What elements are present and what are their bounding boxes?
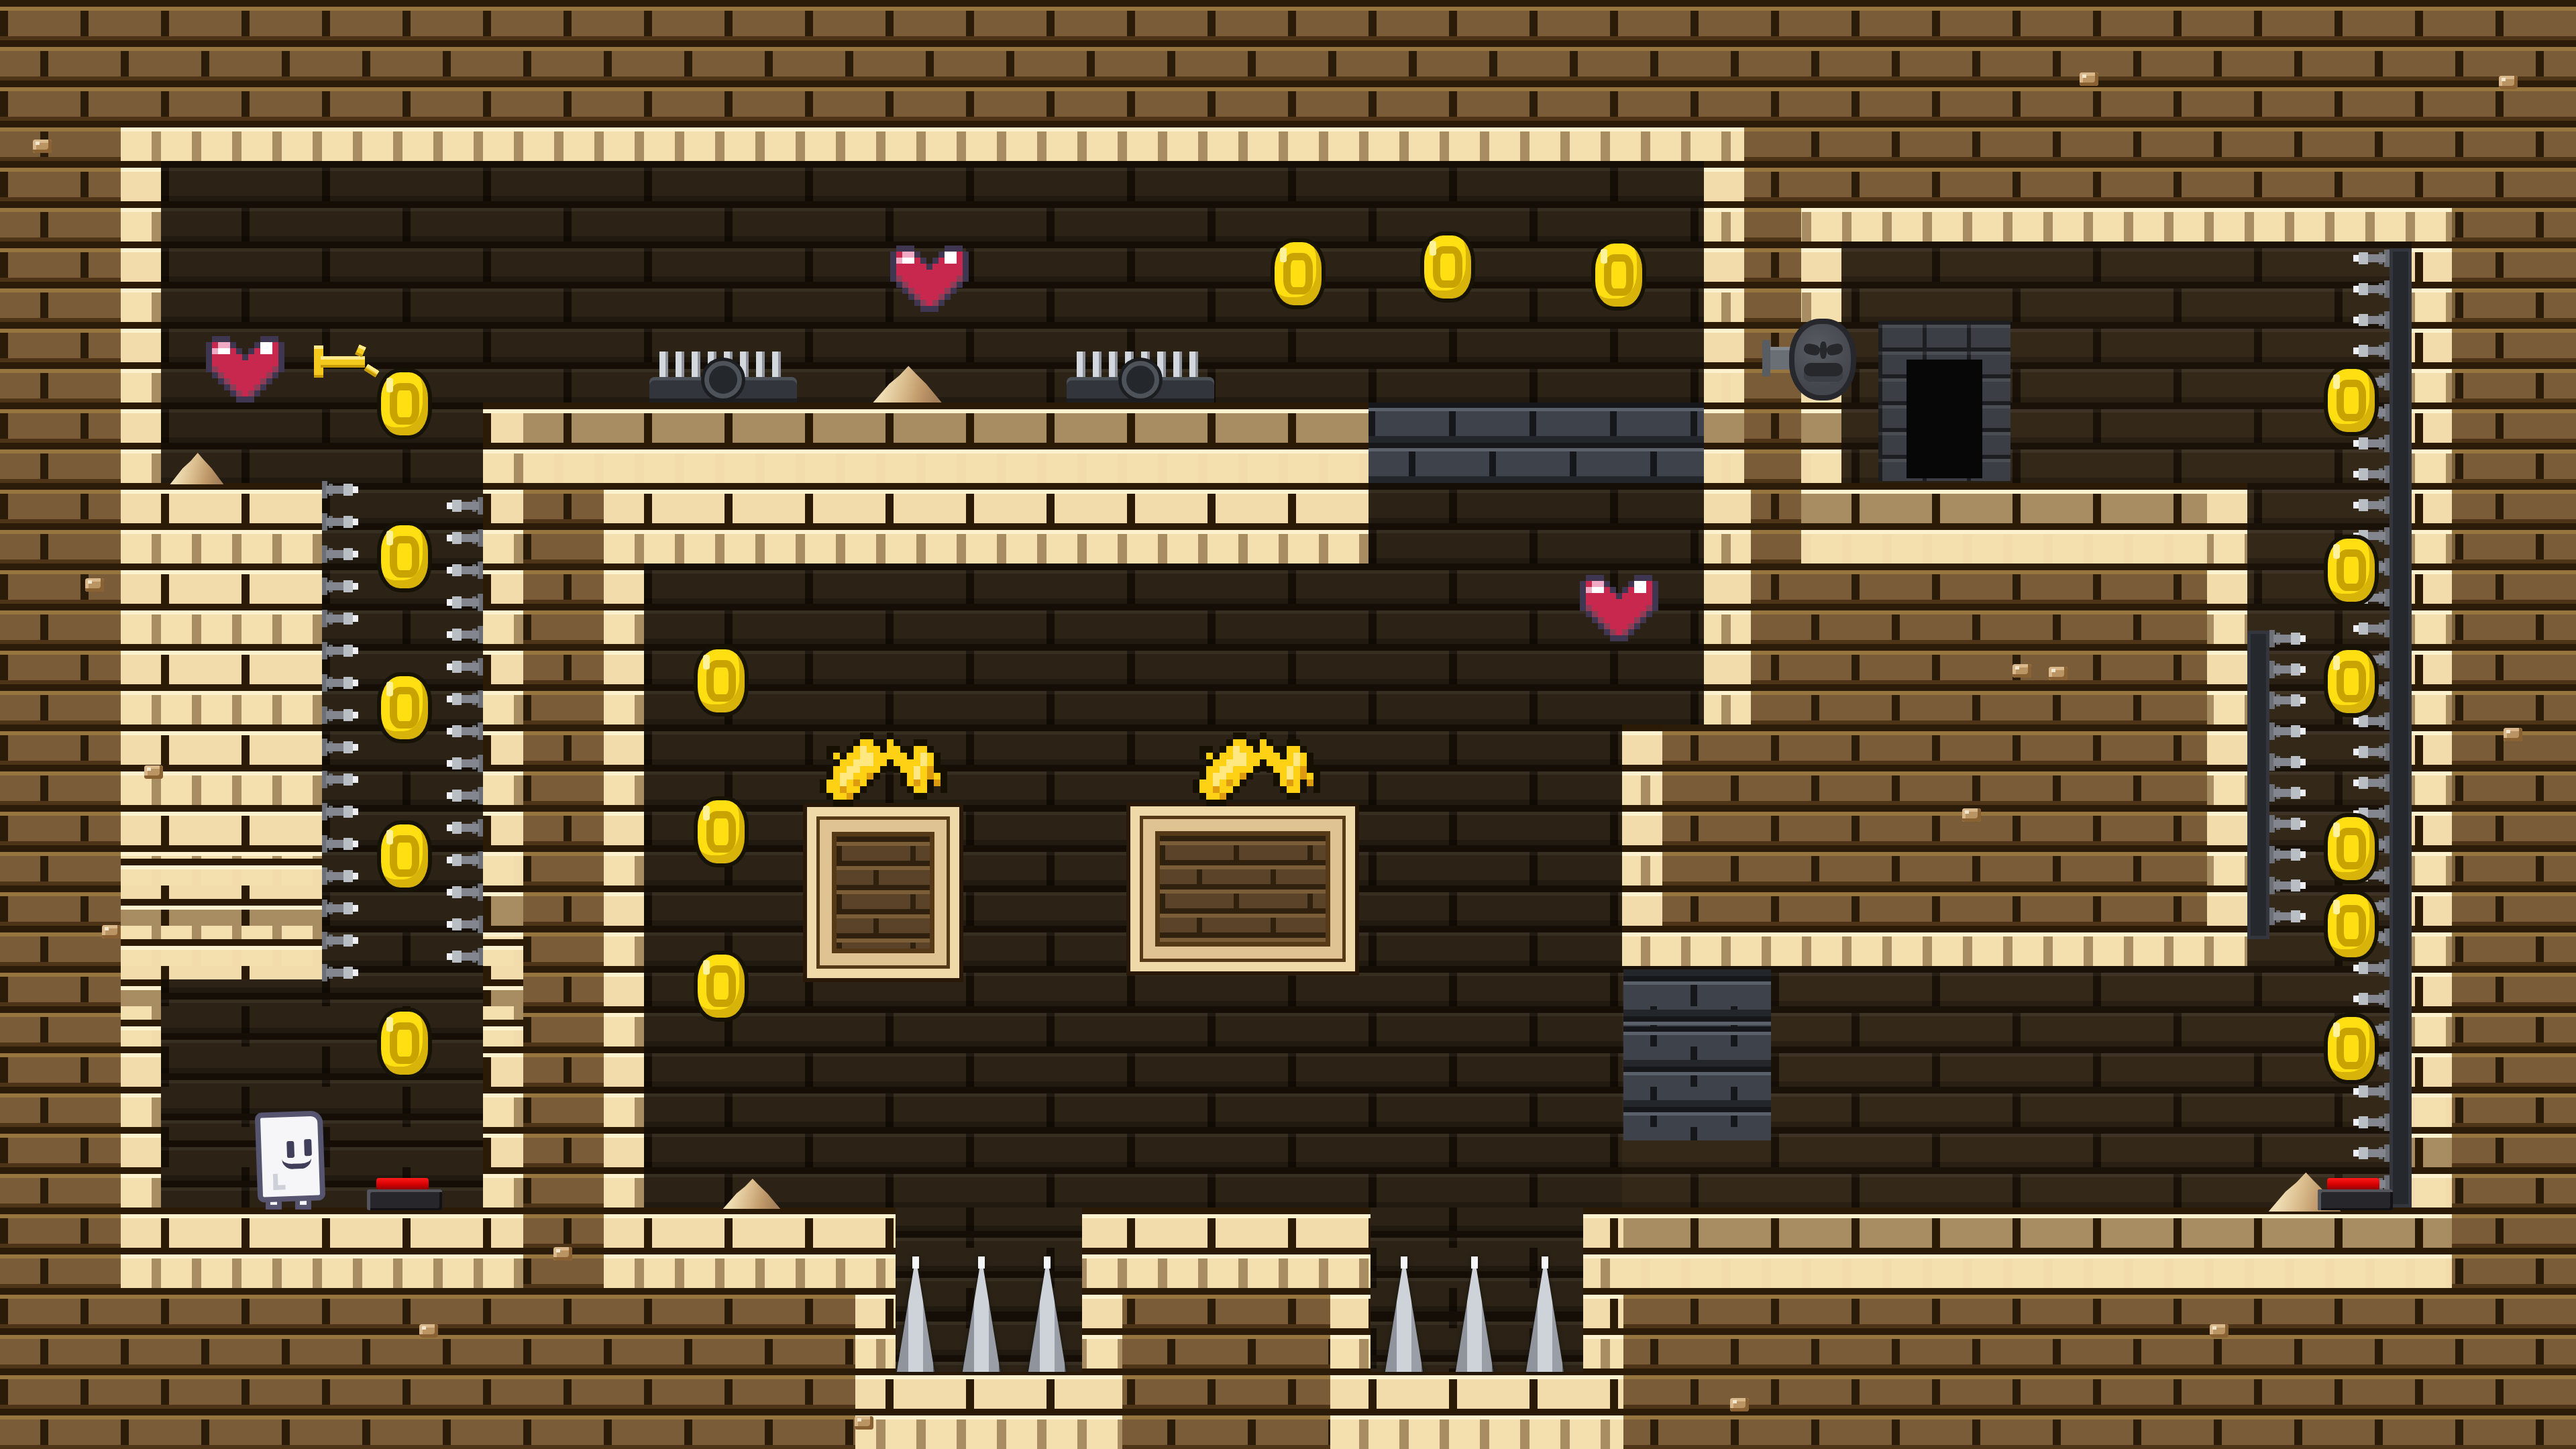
dart-shaft [326,904,345,912]
coin-highlight [386,1017,393,1032]
game-canvas[interactable] [0,0,2576,1449]
dart-shaft [2273,696,2292,704]
dart-head [343,677,353,689]
dart-shaft [326,550,345,558]
dart-shaft [460,856,479,864]
dart-tip [353,680,358,686]
dart-tip [2353,625,2359,632]
pebble-highlight [147,767,151,771]
dart-spike [322,769,361,790]
dart-shaft [2273,851,2292,859]
dart-shaft [460,888,479,896]
dart-spike [2351,1112,2390,1132]
dart-tip [2353,996,2359,1002]
dart-head [452,725,462,737]
dart-tip [353,519,358,525]
dart-spike [2269,721,2308,741]
dart-head [343,580,353,592]
dart-tip [353,776,358,783]
dart-head [452,822,462,834]
dart-shaft [460,727,479,735]
dart-head [2359,715,2368,727]
dart-shaft [2273,789,2292,797]
dart-tip [353,615,358,622]
dart-tip [447,921,452,928]
coin-highlight [1430,241,1436,256]
coin [377,521,432,592]
dart-head [2291,633,2300,645]
dart-head [2359,777,2368,789]
coin [2324,365,2379,436]
dart-head [2359,499,2368,511]
dart-head [2291,879,2300,892]
dart-spike [322,963,361,983]
wall-border [2207,483,2247,966]
dart-tip [2300,759,2306,765]
spike-cone [1375,1256,1434,1372]
dart-head [343,934,353,947]
dart-shaft [326,486,345,494]
dart-head [452,951,462,963]
dart-head [343,612,353,625]
dart-head [343,902,353,914]
pebble-highlight [2015,666,2019,669]
coin-ring [2337,549,2366,591]
dart-head [2359,623,2368,635]
dart-spike [444,882,483,902]
player-character[interactable] [256,1112,324,1210]
dart-spike [444,753,483,773]
dart-spike [322,866,361,886]
door-opening [1907,360,1982,478]
coin-ring [2337,380,2366,421]
dart-tip [2300,697,2306,704]
dart-head [452,918,462,930]
dart-tip [353,808,358,815]
pebble-highlight [556,1249,560,1252]
dart-tip [2353,255,2359,262]
coin [2324,813,2379,884]
dart-head [452,564,462,576]
cannon-nose [1820,341,1827,359]
pebble-highlight [105,927,109,930]
key-tooth [364,364,380,378]
coin [694,951,749,1022]
dart-spike [2351,341,2390,361]
dart-shaft [2367,285,2385,293]
key-shaft [321,356,365,368]
dart-spike [322,705,361,725]
dart-shaft [460,695,479,703]
dart-tip [353,905,358,912]
coin-highlight [2333,1022,2340,1037]
heart-pickup [206,336,212,342]
coin [377,820,432,892]
cannon-mouth [1804,363,1843,382]
dart-tip [447,599,452,606]
pebble-highlight [1965,810,1969,814]
dart-head [452,790,462,802]
metal-block-cluster [1368,402,1704,483]
pebble-debris [2504,728,2522,741]
dart-shaft [326,872,345,880]
dart-head [2359,746,2368,758]
coin [2324,1013,2379,1084]
dart-tip [2353,286,2359,292]
needle-trap [649,352,797,402]
dart-head [452,757,462,769]
pebble-debris [2499,76,2518,89]
dart-head [2359,1116,2368,1128]
dart-head [452,661,462,673]
coin [1271,238,1326,309]
dart-tip [353,551,358,557]
pebble-highlight [857,1418,861,1421]
dart-head [343,773,353,786]
spike-tip [912,1256,919,1269]
dart-shaft [460,792,479,800]
red-button-switch[interactable] [2318,1178,2393,1210]
cannon-peg-cap [1762,340,1770,376]
dart-head [2359,345,2368,357]
dart-spike [2351,279,2390,299]
dart-tip [2353,1088,2359,1095]
needle-trap-hub [1122,361,1159,398]
floor-spike [952,1256,1011,1372]
coin [377,1008,432,1079]
dart-head [2359,993,2368,1005]
dart-tip [353,486,358,493]
dart-tip [353,712,358,718]
dart-head [452,532,462,544]
room-interior [161,161,322,483]
dart-head [2291,694,2300,706]
dart-shaft [2367,439,2385,447]
dart-tip [447,728,452,735]
dart-tip [353,873,358,879]
dart-tip [2300,913,2306,920]
pebble-highlight [2212,1326,2216,1330]
dart-head [2291,787,2300,799]
dart-spike [322,512,361,532]
dart-spike [2351,495,2390,515]
dart-shaft [2367,254,2385,262]
heart-pickup [890,246,896,252]
dart-head [343,516,353,528]
dart-tip [447,502,452,509]
dart-head [343,870,353,882]
golden-flame-idol [820,733,826,739]
pebble-debris [102,925,121,938]
coin-highlight [386,378,393,392]
dart-shaft [2367,501,2385,509]
coin-ring [1283,253,1313,294]
coin-highlight [703,960,710,975]
cannon-eye [1803,342,1821,356]
cannon-face [1789,319,1856,400]
dart-shaft [2367,470,2385,478]
dart-shaft [326,647,345,655]
dart-tip [2353,749,2359,755]
dart-spike [444,786,483,806]
coin-ring [390,687,419,729]
coin-highlight [703,806,710,820]
pebble-highlight [2051,669,2055,672]
dart-spike [322,641,361,661]
dart-head [343,838,353,850]
coin-highlight [1601,249,1607,264]
pebble-highlight [36,142,40,145]
dart-rail [2390,248,2412,1207]
dart-tip [353,583,358,590]
altar-block [1130,806,1355,971]
dart-shaft [2273,665,2292,674]
dart-spike [444,625,483,645]
dart-spike [2351,989,2390,1009]
spike-cone [1515,1256,1574,1372]
dart-shaft [460,953,479,961]
dart-head [2359,283,2368,295]
dart-tip [2353,1150,2359,1157]
dart-shaft [460,566,479,574]
coin-ring [390,383,419,425]
dart-tip [2353,780,2359,786]
dart-head [2359,1147,2368,1159]
dart-spike [2351,1143,2390,1163]
dart-spike [444,818,483,838]
dart-shaft [460,631,479,639]
dart-shaft [326,614,345,623]
floor-spike [1018,1256,1077,1372]
dart-spike [2269,752,2308,772]
pebble-highlight [422,1326,426,1330]
coin-ring [390,835,419,877]
dart-spike [2351,464,2390,484]
dart-tip [447,663,452,670]
pebble-debris [1962,808,1981,822]
dart-spike [322,898,361,918]
dart-shaft [2367,1118,2385,1126]
dart-tip [447,953,452,960]
dart-shaft [460,824,479,832]
pebble-highlight [2082,74,2086,78]
dart-shaft [2367,347,2385,355]
dart-shaft [326,936,345,945]
dart-head [2359,1085,2368,1097]
dart-shaft [2273,912,2292,920]
dart-shaft [2367,995,2385,1003]
key-tooth [355,344,366,357]
dart-head [343,645,353,657]
dart-tip [2353,718,2359,724]
dart-shaft [460,534,479,542]
dart-shaft [2367,316,2385,324]
coin [2324,890,2379,961]
dart-shaft [2367,1087,2385,1095]
dart-tip [2300,666,2306,673]
dart-shaft [2367,810,2385,818]
metal-block-cluster [1623,969,1771,1140]
pebble-debris [553,1247,572,1260]
dart-tip [447,889,452,896]
dart-head [2291,756,2300,768]
dart-shaft [326,679,345,687]
pebble-debris [2049,667,2068,680]
coin-ring [706,660,736,702]
dart-head [2359,314,2368,326]
pebble-debris [33,140,52,153]
dart-spike [2269,906,2308,926]
dart-spike [322,576,361,596]
dart-spike [322,737,361,757]
doorway[interactable] [1878,321,2010,481]
coin-highlight [2333,900,2340,914]
spike-cone [952,1256,1011,1372]
dart-head [452,854,462,866]
dart-head [2359,252,2368,264]
coin-ring [2337,905,2366,947]
coin [377,672,432,743]
coin-highlight [2333,374,2340,389]
dart-tip [2300,728,2306,735]
dart-shaft [2273,635,2292,643]
dart-shaft [326,518,345,526]
dart-spike [322,608,361,629]
dart-shaft [326,582,345,590]
dart-head [343,967,353,979]
dart-tip [2353,471,2359,478]
dart-shaft [326,711,345,719]
dart-head [2291,663,2300,676]
dart-tip [2300,851,2306,858]
button-base [367,1189,442,1210]
dart-shaft [2367,532,2385,540]
dart-head [343,484,353,496]
dart-spike [322,834,361,854]
dart-spike [322,480,361,500]
spike-tip [1044,1256,1051,1269]
spike-cone [1018,1256,1077,1372]
dart-shaft [460,920,479,928]
pebble-debris [419,1324,438,1338]
dart-shaft [326,969,345,977]
dart-spike [322,930,361,951]
dart-spike [2351,1081,2390,1102]
coin-ring [706,811,736,853]
dart-tip [353,937,358,944]
golden-flame-idol [1193,733,1199,739]
altar-block [807,807,959,978]
dart-head [2291,725,2300,737]
altar-block-center [1160,836,1326,942]
pebble-debris [85,578,104,592]
coin-highlight [386,830,393,845]
dart-tip [447,857,452,863]
pebble-highlight [1733,1400,1737,1403]
dart-tip [2353,440,2359,447]
spike-tip [1542,1256,1548,1269]
dart-spike [444,947,483,967]
dart-head [343,806,353,818]
dart-head [2291,910,2300,922]
dart-spike [2351,742,2390,762]
spike-cone [886,1256,945,1372]
dart-shaft [326,743,345,751]
coin [694,645,749,716]
coin [1420,231,1475,303]
coin-ring [390,1022,419,1064]
dart-tip [2300,790,2306,796]
coin-ring [2337,661,2366,702]
pebble-debris [2012,664,2031,678]
dart-head [452,596,462,608]
room-interior [1368,483,1704,563]
pebble-debris [1730,1398,1749,1411]
dart-tip [353,841,358,847]
coin [1591,239,1646,311]
dart-spike [2269,690,2308,710]
dart-spike [2351,773,2390,793]
player-pocket-mark [273,1173,286,1190]
coin-highlight [703,655,710,669]
dart-spike [2269,783,2308,803]
dart-head [2291,818,2300,830]
pebble-debris [144,765,163,779]
dart-spike [444,689,483,709]
dart-spike [444,496,483,516]
red-button-switch[interactable] [367,1178,442,1210]
dart-spike [444,850,483,870]
dart-spike [2351,248,2390,268]
spike-tip [1471,1256,1478,1269]
dart-spike [322,673,361,693]
floor-spike [1515,1256,1574,1372]
coin-ring [390,536,419,578]
dart-tip [2353,965,2359,971]
dart-spike [2269,845,2308,865]
spike-tip [978,1256,985,1269]
dart-tip [447,631,452,638]
dart-head [452,629,462,641]
dart-shaft [326,775,345,784]
dart-tip [2353,1119,2359,1126]
coin-ring [2337,1028,2366,1069]
dart-head [343,548,353,560]
coin-highlight [2333,655,2340,670]
dart-tip [447,696,452,702]
dart-shaft [2367,717,2385,725]
dart-head [2359,962,2368,974]
dart-shaft [326,808,345,816]
floor-spike [1445,1256,1504,1372]
dart-head [452,500,462,512]
coin-ring [1433,246,1462,288]
pebble-debris [855,1416,873,1430]
dart-head [2291,849,2300,861]
coin-ring [1604,254,1633,296]
pebble-debris [2210,1324,2229,1338]
dart-spike [2269,875,2308,896]
dart-shaft [2367,1149,2385,1157]
dart-tip [447,760,452,767]
dart-shaft [460,663,479,671]
dart-spike [444,721,483,741]
dart-shaft [2367,964,2385,972]
dart-shaft [2273,820,2292,828]
coin-highlight [2333,822,2340,837]
coin [2324,646,2379,717]
coin-highlight [2333,544,2340,559]
